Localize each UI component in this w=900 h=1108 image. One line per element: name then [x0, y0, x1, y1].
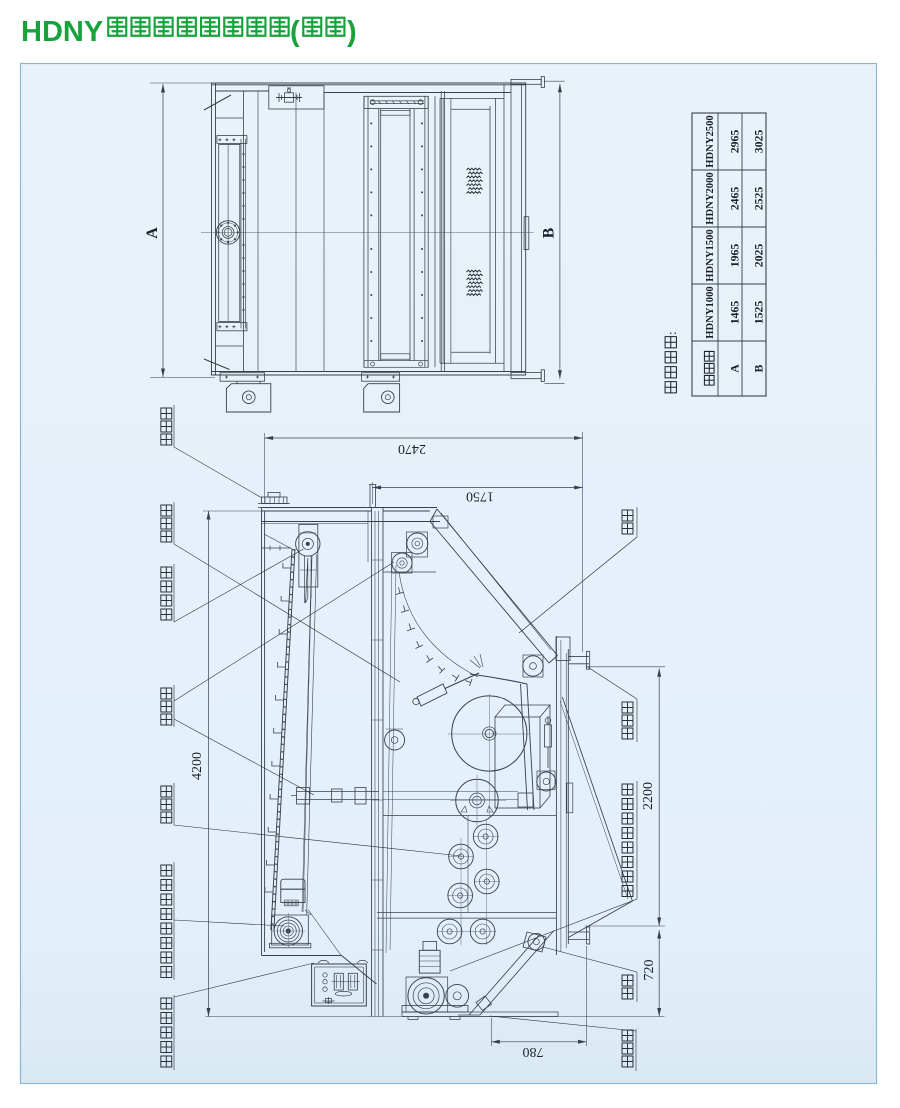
svg-text:B: B — [541, 227, 558, 238]
svg-text:2470: 2470 — [398, 441, 426, 456]
svg-text:2200: 2200 — [641, 782, 656, 810]
svg-text:2025: 2025 — [752, 244, 766, 268]
svg-text:720: 720 — [642, 960, 657, 981]
svg-text:HDNY2000: HDNY2000 — [705, 172, 716, 224]
svg-text:1465: 1465 — [728, 301, 742, 325]
svg-text:3025: 3025 — [752, 130, 766, 154]
svg-text:1525: 1525 — [752, 301, 766, 325]
svg-text:2525: 2525 — [752, 187, 766, 211]
svg-text:2465: 2465 — [728, 187, 742, 211]
svg-text:2965: 2965 — [728, 130, 742, 154]
svg-text::: : — [664, 331, 679, 335]
svg-text:HDNY1500: HDNY1500 — [705, 229, 716, 281]
svg-text:A: A — [728, 364, 742, 373]
svg-text:HDNY1000: HDNY1000 — [705, 286, 716, 338]
svg-text:): ) — [347, 16, 357, 48]
svg-text:1750: 1750 — [466, 489, 494, 504]
svg-text:4200: 4200 — [190, 752, 205, 780]
svg-text:1965: 1965 — [728, 244, 742, 268]
svg-text:(: ( — [290, 16, 300, 48]
svg-text:780: 780 — [523, 1044, 544, 1059]
svg-text:A: A — [144, 227, 161, 239]
svg-text:HDNY: HDNY — [21, 16, 103, 48]
svg-text:HDNY2500: HDNY2500 — [705, 115, 716, 167]
svg-text:B: B — [752, 364, 766, 372]
